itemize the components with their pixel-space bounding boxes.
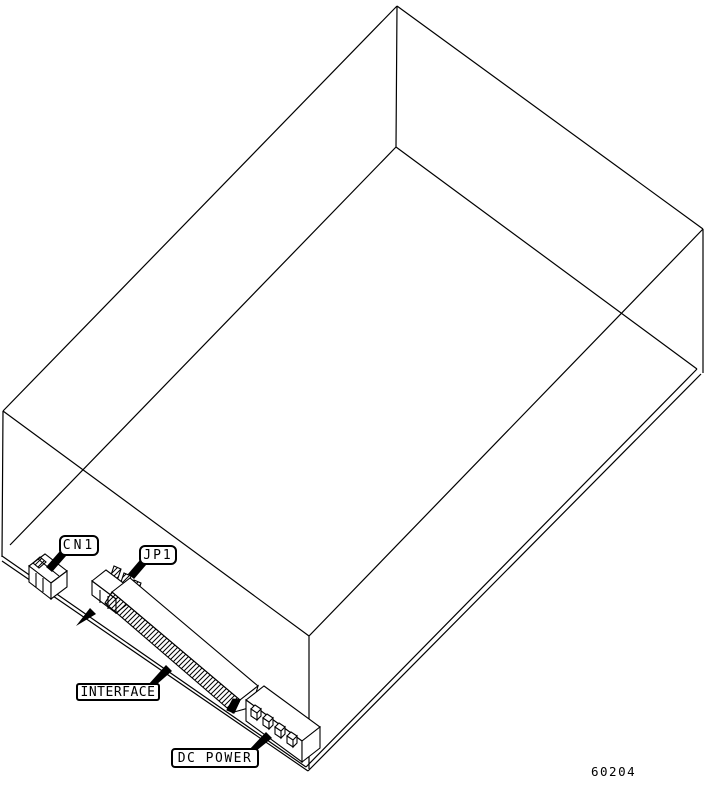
figure-canvas: CN1 JP1 INTERFACE DC POWER 60204 <box>0 0 705 794</box>
base-plate-right-edge <box>306 369 701 771</box>
figure-number: 60204 <box>591 766 636 779</box>
enclosure-inner-edges <box>10 6 697 545</box>
callout-cn1-label: CN1 <box>63 539 95 552</box>
callout-interface-label: INTERFACE <box>81 686 156 699</box>
interface-body-top <box>112 578 258 700</box>
enclosure-top-edges <box>3 6 703 411</box>
enclosure-wireframe <box>2 6 703 771</box>
callout-jp1: JP1 <box>139 545 177 565</box>
callout-pointers <box>46 551 272 751</box>
callout-cn1: CN1 <box>59 535 99 556</box>
callout-dc-power: DC POWER <box>171 748 259 768</box>
callout-jp1-label: JP1 <box>143 549 172 562</box>
drive-isometric-drawing <box>0 0 705 794</box>
callout-dc-power-label: DC POWER <box>178 752 253 765</box>
callout-interface: INTERFACE <box>76 683 160 701</box>
